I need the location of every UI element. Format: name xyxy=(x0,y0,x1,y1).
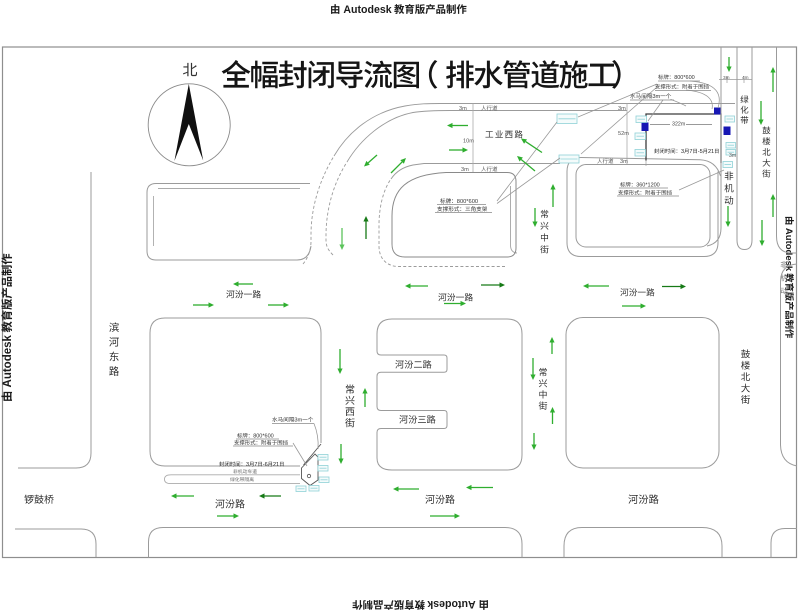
svg-text:3m: 3m xyxy=(461,167,469,173)
svg-text:Autodesk: Autodesk xyxy=(424,598,478,610)
svg-text:21: 21 xyxy=(708,149,714,155)
svg-text:3: 3 xyxy=(681,149,684,155)
svg-text:360*1200: 360*1200 xyxy=(636,183,660,189)
svg-text:800*600: 800*600 xyxy=(457,199,478,205)
svg-text:3: 3 xyxy=(246,462,249,468)
svg-text:800*600: 800*600 xyxy=(674,75,695,81)
svg-text:52m: 52m xyxy=(618,131,629,137)
svg-text:3m: 3m xyxy=(652,94,660,100)
svg-text:322m: 322m xyxy=(672,122,686,128)
svg-text:3m: 3m xyxy=(729,153,736,159)
svg-text:3m: 3m xyxy=(620,159,628,165)
svg-text:-5: -5 xyxy=(698,149,703,155)
svg-text:4m: 4m xyxy=(742,75,749,80)
svg-text:21: 21 xyxy=(273,462,279,468)
svg-text:3m: 3m xyxy=(459,106,467,112)
svg-text:10m: 10m xyxy=(463,139,474,145)
svg-text:-6: -6 xyxy=(263,462,268,468)
svg-text:800*600: 800*600 xyxy=(253,434,274,440)
svg-text:7: 7 xyxy=(254,462,257,468)
svg-text:3m: 3m xyxy=(723,75,730,80)
svg-text:Autodesk: Autodesk xyxy=(2,332,14,391)
svg-text:3m: 3m xyxy=(618,106,626,112)
svg-text:3m: 3m xyxy=(294,418,302,424)
svg-text:Autodesk: Autodesk xyxy=(340,4,394,16)
svg-text:7: 7 xyxy=(689,149,692,155)
